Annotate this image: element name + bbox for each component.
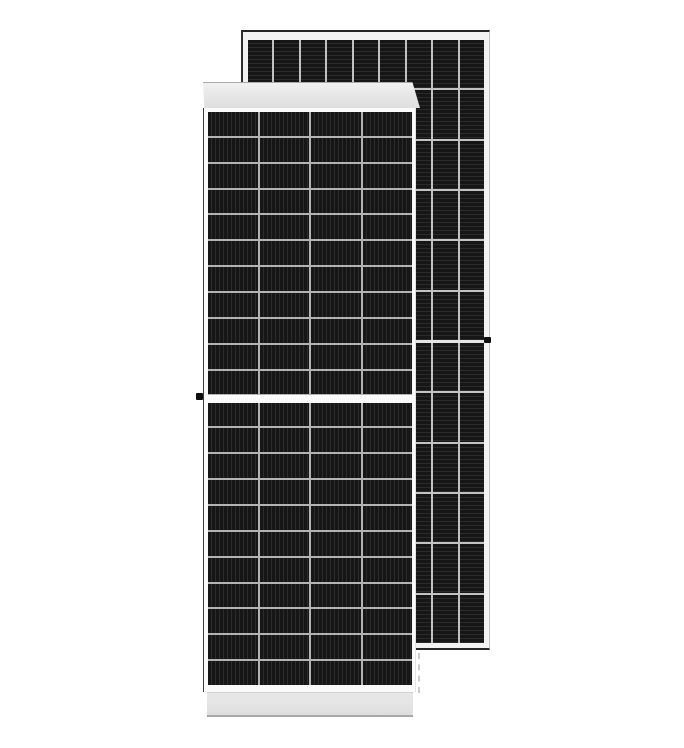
solar-cell [460, 191, 484, 239]
solar-cell [363, 319, 413, 343]
solar-cell [274, 40, 298, 88]
solar-cell [260, 403, 310, 427]
solar-cell [311, 319, 361, 343]
solar-cell [363, 164, 413, 188]
solar-cell [363, 138, 413, 162]
solar-cell [208, 345, 258, 369]
solar-cell [208, 428, 258, 452]
solar-cell [260, 138, 310, 162]
solar-cell [311, 454, 361, 478]
solar-cell [311, 661, 361, 685]
solar-cell [311, 532, 361, 556]
solar-cell [433, 544, 457, 592]
solar-cell [433, 141, 457, 189]
solar-cell [433, 90, 457, 138]
solar-cell [208, 661, 258, 685]
front-panel-cell-area [208, 112, 412, 685]
solar-cell [460, 494, 484, 542]
solar-cell [260, 428, 310, 452]
solar-cell [208, 558, 258, 582]
solar-cell [208, 609, 258, 633]
solar-cell [407, 40, 431, 88]
solar-cell [460, 343, 484, 391]
solar-cell [363, 635, 413, 659]
solar-cell [363, 190, 413, 214]
solar-cell [260, 506, 310, 530]
solar-cell [433, 241, 457, 289]
solar-panel-product-photo [0, 0, 684, 748]
solar-cell [460, 393, 484, 441]
solar-cell [433, 292, 457, 340]
solar-cell [363, 371, 413, 395]
solar-cell [311, 345, 361, 369]
front-solar-panel [203, 108, 416, 692]
grounding-dot-front-panel [196, 393, 203, 400]
solar-cell [327, 40, 351, 88]
solar-cell [260, 190, 310, 214]
front-panel-bottom-frame-band [207, 692, 413, 717]
solar-cell [260, 215, 310, 239]
solar-cell [460, 141, 484, 189]
solar-cell [208, 190, 258, 214]
solar-cell [311, 609, 361, 633]
solar-cell [208, 403, 258, 427]
solar-cell [363, 609, 413, 633]
solar-cell [363, 454, 413, 478]
front-panel-top-frame-band [203, 82, 420, 108]
solar-cell [260, 480, 310, 504]
solar-cell [208, 532, 258, 556]
solar-cell [208, 506, 258, 530]
solar-cell [311, 506, 361, 530]
solar-cell [311, 558, 361, 582]
solar-cell [208, 267, 258, 291]
solar-cell [460, 241, 484, 289]
solar-cell [248, 40, 272, 88]
solar-cell [311, 138, 361, 162]
solar-cell [208, 635, 258, 659]
solar-cell [208, 241, 258, 265]
solar-cell [460, 90, 484, 138]
solar-cell [354, 40, 378, 88]
solar-cell [260, 584, 310, 608]
solar-cell [208, 215, 258, 239]
solar-cell [363, 584, 413, 608]
solar-cell [208, 454, 258, 478]
solar-cell [433, 444, 457, 492]
solar-cell [311, 584, 361, 608]
solar-cell [260, 661, 310, 685]
solar-cell [311, 428, 361, 452]
solar-cell [363, 345, 413, 369]
solar-cell [260, 558, 310, 582]
solar-cell [311, 112, 361, 136]
solar-cell [363, 480, 413, 504]
solar-cell [363, 293, 413, 317]
solar-cell [311, 403, 361, 427]
solar-cell [311, 190, 361, 214]
solar-cell [260, 609, 310, 633]
front-panel-center-gap [208, 395, 412, 403]
solar-cell [380, 40, 404, 88]
solar-cell [460, 544, 484, 592]
solar-cell [260, 241, 310, 265]
solar-cell [311, 241, 361, 265]
solar-cell [433, 393, 457, 441]
solar-cell [363, 428, 413, 452]
solar-cell [208, 584, 258, 608]
solar-cell [208, 112, 258, 136]
solar-cell [208, 319, 258, 343]
solar-cell [460, 444, 484, 492]
solar-cell [433, 40, 457, 88]
solar-cell [208, 164, 258, 188]
solar-cell [460, 292, 484, 340]
solar-cell [260, 319, 310, 343]
front-panel-lower-cell-grid [208, 403, 412, 686]
solar-cell [363, 241, 413, 265]
solar-cell [311, 480, 361, 504]
solar-cell [208, 480, 258, 504]
front-panel-upper-cell-grid [208, 112, 412, 395]
solar-cell [363, 506, 413, 530]
solar-cell [260, 454, 310, 478]
solar-cell [311, 215, 361, 239]
solar-cell [208, 138, 258, 162]
solar-cell [260, 112, 310, 136]
solar-cell [433, 343, 457, 391]
solar-cell [260, 293, 310, 317]
solar-cell [301, 40, 325, 88]
mounting-hole-dot-back-panel [484, 337, 491, 343]
solar-cell [260, 164, 310, 188]
solar-cell [260, 532, 310, 556]
solar-cell [363, 112, 413, 136]
back-panel-shadow [418, 653, 420, 693]
solar-cell [208, 371, 258, 395]
solar-cell [311, 293, 361, 317]
solar-cell [433, 191, 457, 239]
solar-cell [260, 345, 310, 369]
solar-cell [311, 267, 361, 291]
solar-cell [363, 558, 413, 582]
solar-cell [460, 595, 484, 643]
solar-cell [260, 635, 310, 659]
solar-cell [363, 403, 413, 427]
solar-cell [311, 164, 361, 188]
solar-cell [433, 494, 457, 542]
solar-cell [460, 40, 484, 88]
solar-cell [260, 267, 310, 291]
solar-cell [433, 595, 457, 643]
solar-cell [260, 371, 310, 395]
solar-cell [363, 532, 413, 556]
solar-cell [311, 635, 361, 659]
solar-cell [311, 371, 361, 395]
solar-cell [363, 267, 413, 291]
solar-cell [363, 215, 413, 239]
solar-cell [363, 661, 413, 685]
solar-cell [208, 293, 258, 317]
